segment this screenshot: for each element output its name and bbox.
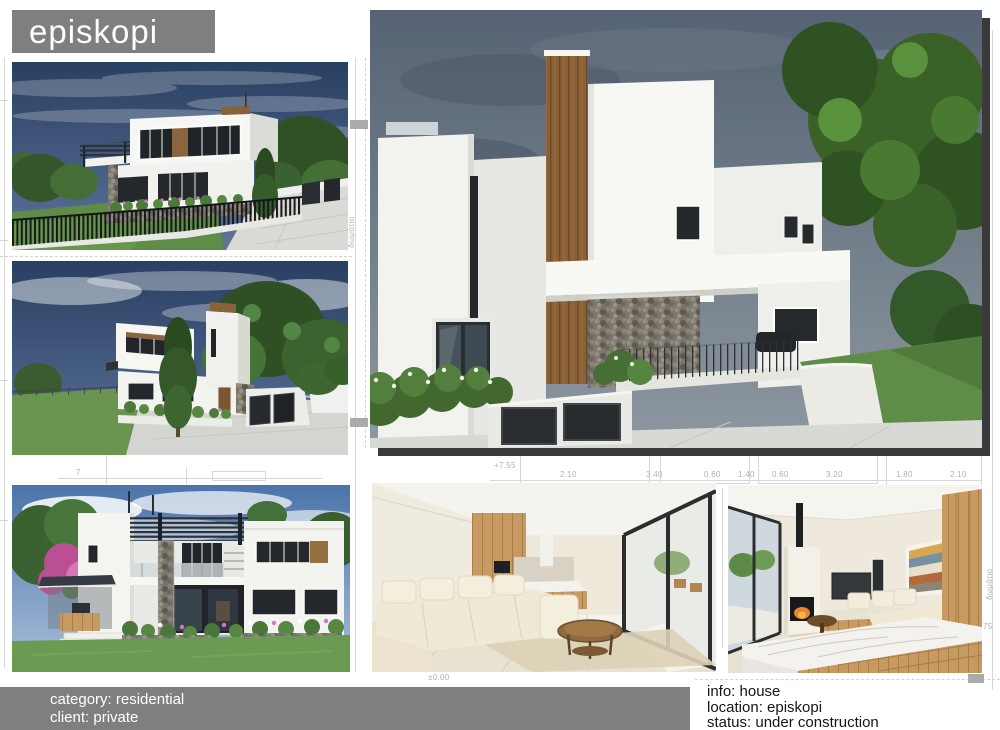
dimension-label: 0.60 <box>772 470 789 479</box>
status-line: status: under construction <box>707 715 879 730</box>
footer-bar: category: residential client: private <box>0 687 690 730</box>
grid-label: 75 <box>983 622 993 631</box>
render-exterior-main <box>370 10 982 448</box>
render-exterior-side <box>12 261 348 455</box>
info-line: info: house <box>707 684 879 700</box>
location-line: location: episkopi <box>707 700 879 716</box>
render-interior-living <box>372 483 716 672</box>
dimension-label: 1.80 <box>896 470 913 479</box>
dimension-label: 3.20 <box>826 470 843 479</box>
render-interior-lounge <box>728 485 982 673</box>
render-exterior-garden <box>12 485 350 672</box>
dimension-label: 0.60 <box>704 470 721 479</box>
dimension-label: 2.10 <box>950 470 967 479</box>
portfolio-sheet: δωμάτιο 7 +7.55 2.10 3.40 0.60 1.40 0.60… <box>0 0 1000 730</box>
render-exterior-corner <box>12 62 348 250</box>
level-label-upper: +7.55 <box>494 461 516 470</box>
project-info: info: house location: episkopi status: u… <box>707 684 879 730</box>
room-label: δωμάτιο <box>347 217 356 248</box>
category-label: category: residential <box>50 691 690 709</box>
dimension-label: 1.40 <box>738 470 755 479</box>
title-banner: episkopi <box>12 10 215 53</box>
grid-label: 7 <box>76 468 81 477</box>
room-label: δωμάτιο <box>985 569 994 600</box>
dimension-label: 3.40 <box>646 470 663 479</box>
client-label: client: private <box>50 709 690 727</box>
page-title: episkopi <box>12 10 215 53</box>
level-label-zero: ±0.00 <box>428 673 449 682</box>
dimension-label: 2.10 <box>560 470 577 479</box>
